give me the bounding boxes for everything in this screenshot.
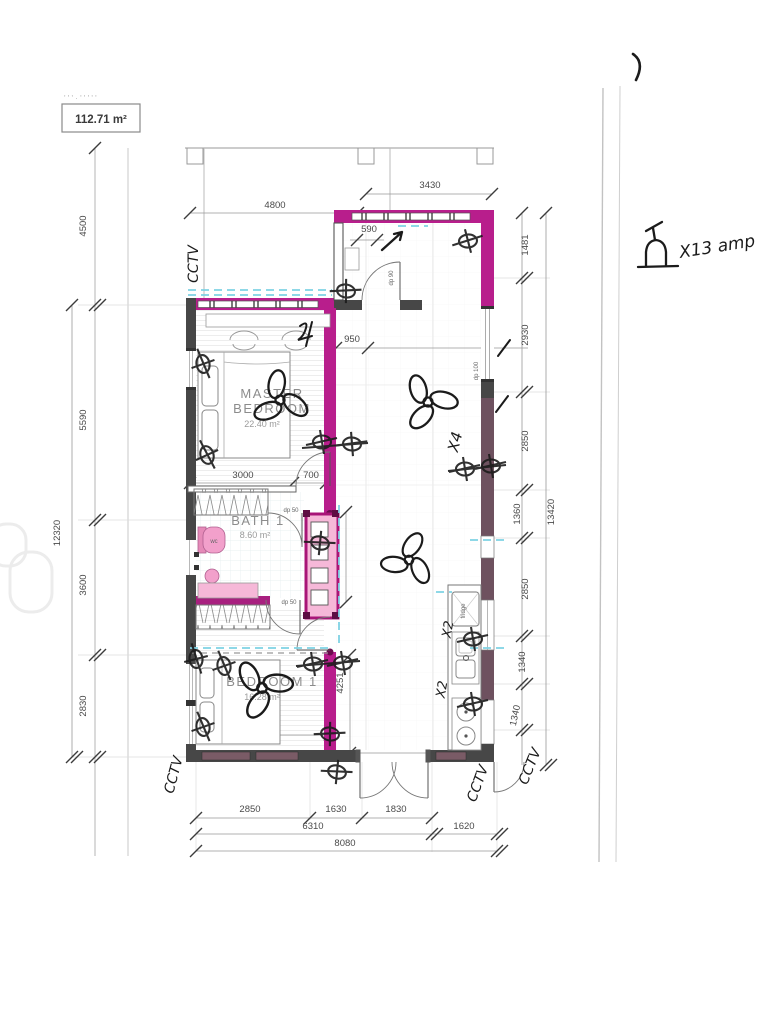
page-edge-line (599, 88, 603, 862)
socket-symbol-sketch (638, 222, 678, 267)
dim-bottom-2850: 2850 (239, 804, 260, 815)
dim-master-950: 950 (344, 334, 360, 345)
cctv-annotation: CCTV (464, 762, 492, 804)
total-area-value: 112.71 m² (75, 114, 127, 126)
wc-label: wc (209, 539, 217, 545)
dim-inner-700: 700 (303, 470, 319, 481)
socket-count-annotation: X2 (440, 620, 458, 641)
dim-left-5590: 5590 (78, 409, 89, 430)
floor-plan-scan: 4800 3430 590 950 4500 5590 12320 3600 2… (0, 0, 776, 1023)
dp100-label: dp 100 (474, 361, 480, 380)
dim-bottom-8080: 8080 (334, 838, 355, 849)
master-bedroom-label-2: BEDROOM (233, 401, 311, 416)
right-wall-upper (481, 210, 494, 306)
dim-top-4800: 4800 (264, 200, 285, 211)
dim-right-2850b: 2850 (520, 578, 531, 599)
floor-plan-drawing: 4800 3430 590 950 4500 5590 12320 3600 2… (0, 0, 776, 1023)
dim-bottom-1830: 1830 (385, 804, 406, 815)
dim-right-1340a: 1340 (517, 651, 528, 672)
cctv-annotation: CCTV (516, 745, 545, 787)
dim-left-12320: 12320 (52, 520, 63, 546)
kitchen: fridge (448, 585, 481, 750)
fridge-label: fridge (461, 603, 467, 619)
dim-right-1481: 1481 (520, 234, 531, 255)
bath-label: BATH 1 (231, 513, 285, 528)
dim-right-1340b: 1340 (508, 704, 523, 727)
vanity-counter (198, 583, 258, 598)
entry-cabinet (345, 248, 359, 270)
dim-right-2850a: 2850 (520, 430, 531, 451)
page-edge-line (616, 86, 620, 862)
dim-bottom-6310: 6310 (302, 821, 323, 832)
dim-left-4500: 4500 (78, 215, 89, 236)
dim-top-3430: 3430 (419, 180, 440, 191)
master-bedroom-label-1: MASTER (240, 386, 303, 401)
dim-right-2930: 2930 (520, 324, 531, 345)
foyer-wall-left (334, 300, 362, 310)
amp-note-annotation: X13 amp (677, 231, 757, 263)
dim-left-2830: 2830 (78, 695, 89, 716)
dp90-label: dp 90 (389, 270, 395, 286)
dim-entry-590: 590 (361, 224, 377, 235)
hole-punch-mark (10, 552, 52, 612)
dp50-bottom-label: dp 50 (281, 600, 297, 606)
dim-right-1360: 1360 (512, 503, 523, 524)
dp50-top-label: dp 50 (283, 508, 299, 514)
cctv-annotation: CCTV (162, 753, 188, 795)
socket-count-annotation: X2 (434, 680, 452, 701)
bottom-wall (186, 750, 494, 762)
dim-inner-3000: 3000 (232, 470, 253, 481)
cctv-annotation: CCTV (186, 244, 202, 283)
foyer-wall-right (400, 300, 422, 310)
dim-right-13420: 13420 (546, 499, 557, 525)
faded-print-marks: ' ' ' · ' ' ' ' ' (64, 94, 97, 103)
basin (205, 569, 219, 583)
dim-bottom-1620: 1620 (453, 821, 474, 832)
bath-area: 8.60 m² (240, 530, 271, 540)
wardrobe-bottom (196, 605, 270, 629)
area-title-box: ' ' ' · ' ' ' ' ' 112.71 m² (62, 94, 140, 132)
bath-fixture-unit (303, 510, 339, 619)
fridge: fridge (452, 592, 479, 626)
dim-left-3600: 3600 (78, 574, 89, 595)
wardrobe-top (194, 489, 268, 515)
toilet: wc (198, 527, 225, 553)
dim-bottom-1630: 1630 (325, 804, 346, 815)
dim-inner-4251: 4251 (335, 672, 346, 693)
